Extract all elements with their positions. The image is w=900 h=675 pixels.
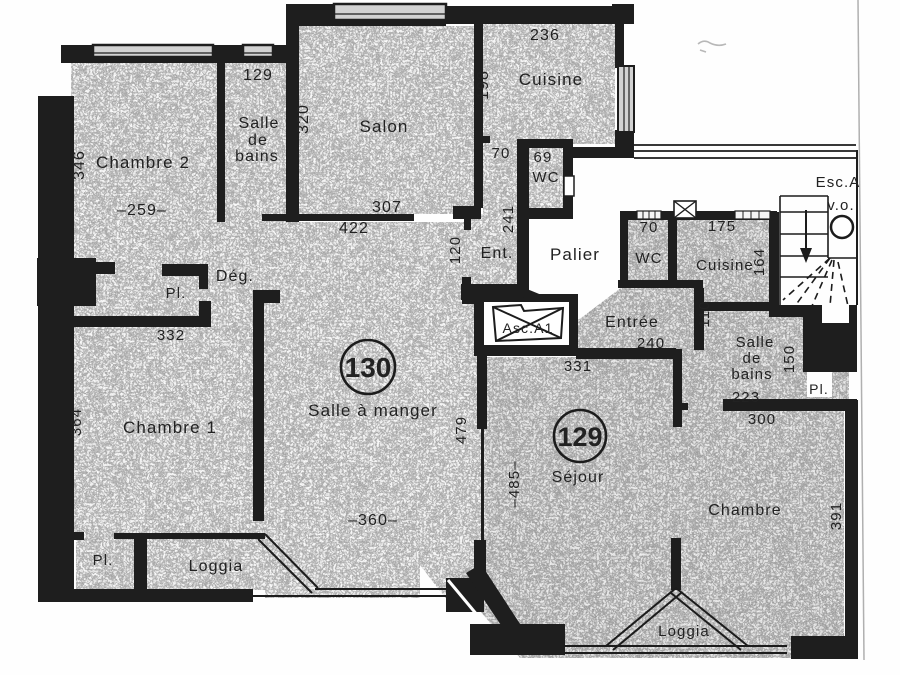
- svg-text:223: 223: [732, 389, 760, 406]
- svg-text:69: 69: [534, 149, 553, 166]
- svg-text:Chambre 1: Chambre 1: [123, 418, 217, 437]
- svg-text:479: 479: [453, 416, 470, 444]
- svg-text:130: 130: [345, 352, 392, 383]
- svg-text:Chambre 2: Chambre 2: [96, 153, 190, 172]
- svg-text:Asc.A1: Asc.A1: [503, 320, 554, 336]
- svg-text:391: 391: [828, 502, 845, 530]
- svg-text:Séjour: Séjour: [552, 469, 605, 486]
- svg-text:236: 236: [530, 27, 560, 44]
- svg-text:320: 320: [295, 104, 312, 134]
- svg-text:241: 241: [500, 205, 517, 233]
- svg-text:Palier: Palier: [550, 245, 600, 264]
- svg-text:300: 300: [748, 411, 776, 428]
- svg-text:Entrée: Entrée: [605, 314, 659, 331]
- svg-text:70: 70: [640, 219, 659, 236]
- svg-text:bains: bains: [731, 366, 772, 383]
- svg-text:Cuisine: Cuisine: [519, 70, 583, 89]
- svg-text:Pl.: Pl.: [809, 381, 829, 397]
- svg-text:Salle: Salle: [736, 334, 775, 351]
- svg-text:198: 198: [475, 70, 492, 100]
- svg-text:332: 332: [157, 327, 185, 344]
- svg-text:129: 129: [243, 67, 273, 84]
- svg-text:–485–: –485–: [506, 460, 523, 507]
- svg-text:de: de: [743, 350, 762, 367]
- svg-text:–360–: –360–: [348, 512, 398, 529]
- svg-text:Pl.: Pl.: [166, 285, 187, 302]
- svg-text:Ent.: Ent.: [481, 245, 514, 262]
- svg-text:WC: WC: [532, 169, 559, 186]
- svg-text:Salle à manger: Salle à manger: [308, 401, 438, 420]
- svg-text:307: 307: [372, 199, 402, 216]
- svg-text:Dég.: Dég.: [216, 268, 254, 285]
- svg-text:331: 331: [564, 358, 592, 375]
- svg-text:Pl.: Pl.: [93, 552, 114, 569]
- svg-text:129: 129: [557, 422, 602, 452]
- svg-text:175: 175: [708, 218, 736, 235]
- svg-text:110: 110: [696, 300, 713, 327]
- svg-text:bains: bains: [235, 148, 279, 165]
- svg-text:346: 346: [71, 150, 88, 180]
- svg-text:Esc.A: Esc.A: [816, 174, 861, 191]
- svg-text:Cuisine: Cuisine: [696, 257, 754, 274]
- svg-text:364: 364: [68, 408, 85, 436]
- svg-text:Loggia: Loggia: [658, 623, 710, 640]
- svg-text:70: 70: [492, 145, 511, 162]
- svg-text:Chambre: Chambre: [708, 502, 782, 519]
- svg-text:–259–: –259–: [117, 202, 167, 219]
- svg-text:v.o.: v.o.: [827, 197, 854, 214]
- svg-text:240: 240: [637, 335, 665, 352]
- svg-text:150: 150: [781, 345, 798, 373]
- svg-text:Salon: Salon: [360, 117, 409, 136]
- svg-text:WC: WC: [635, 250, 662, 267]
- svg-text:de: de: [248, 132, 268, 149]
- svg-text:422: 422: [339, 220, 369, 237]
- svg-text:120: 120: [447, 236, 464, 264]
- svg-text:Salle: Salle: [238, 115, 279, 132]
- svg-text:164: 164: [751, 248, 768, 276]
- svg-text:Loggia: Loggia: [189, 558, 244, 575]
